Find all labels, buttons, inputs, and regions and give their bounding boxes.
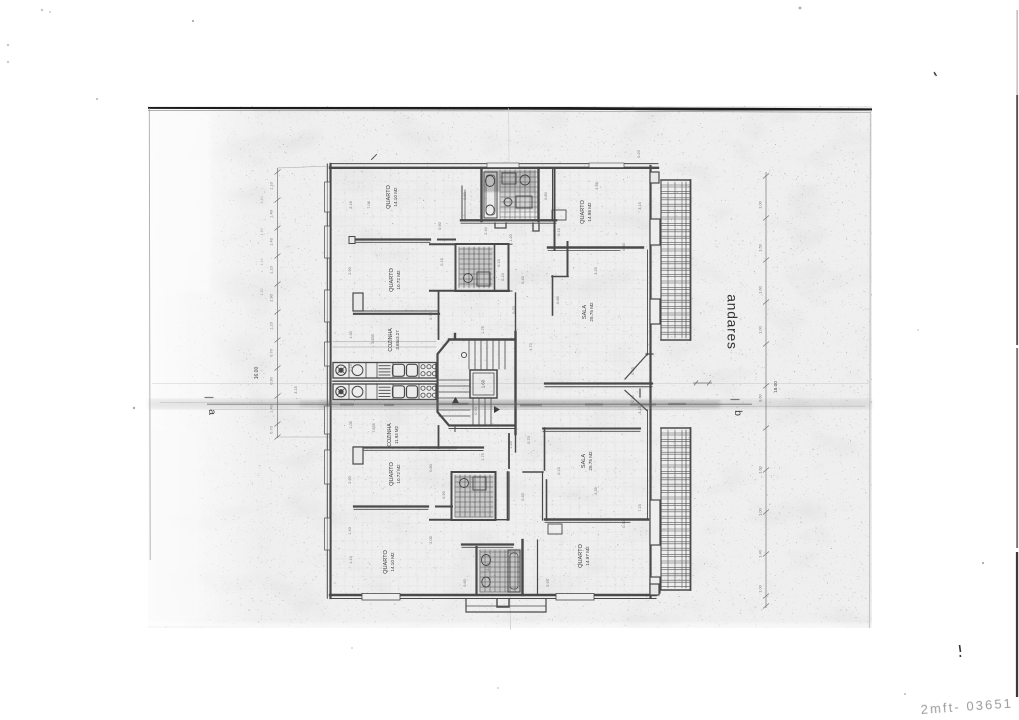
svg-text:4.35: 4.35 (594, 487, 598, 494)
svg-text:7.15: 7.15 (638, 504, 642, 511)
svg-text:3.15: 3.15 (294, 386, 298, 393)
svg-text:2.90: 2.90 (348, 267, 352, 274)
svg-text:2.05: 2.05 (429, 536, 433, 543)
svg-text:10.72 M2: 10.72 M2 (396, 270, 401, 290)
svg-text:1.10: 1.10 (270, 322, 274, 329)
svg-text:0.15: 0.15 (440, 258, 444, 265)
svg-text:1.40: 1.40 (270, 210, 274, 217)
svg-text:0.15: 0.15 (557, 467, 561, 474)
svg-text:1.40: 1.40 (270, 405, 274, 412)
svg-text:7.635: 7.635 (372, 423, 376, 433)
svg-text:1.75: 1.75 (481, 326, 485, 333)
svg-text:2.10: 2.10 (349, 201, 353, 208)
svg-text:1.50: 1.50 (758, 243, 763, 251)
svg-text:25.75 M2: 25.75 M2 (588, 451, 593, 471)
svg-text:0.90: 0.90 (438, 222, 442, 229)
svg-text:2.90: 2.90 (348, 476, 352, 483)
svg-text:1.10: 1.10 (270, 182, 274, 189)
svg-text:0.90: 0.90 (474, 407, 478, 414)
svg-text:0.10: 0.10 (501, 273, 505, 280)
svg-text:1.20: 1.20 (509, 441, 513, 448)
svg-text:2.40: 2.40 (484, 227, 488, 234)
svg-text:0.15: 0.15 (557, 228, 561, 235)
svg-text:0.30: 0.30 (622, 520, 626, 527)
svg-text:14.10 M2: 14.10 M2 (390, 552, 395, 572)
svg-text:0.15: 0.15 (497, 259, 501, 266)
svg-text:1.10: 1.10 (260, 197, 264, 204)
svg-text:QUARTO: QUARTO (580, 199, 586, 223)
svg-text:16.00: 16.00 (254, 367, 260, 380)
svg-text:2.15: 2.15 (349, 364, 353, 371)
svg-text:1.43: 1.43 (260, 259, 264, 266)
svg-text:1.75: 1.75 (481, 453, 485, 460)
svg-text:1.43: 1.43 (270, 238, 274, 245)
svg-text:14.97 M2: 14.97 M2 (585, 546, 590, 566)
svg-text:SALA: SALA (581, 454, 587, 469)
svg-text:0.80: 0.80 (429, 464, 433, 471)
svg-text:0.20: 0.20 (512, 306, 516, 313)
svg-text:0.90: 0.90 (270, 377, 274, 384)
svg-text:COZINHA: COZINHA (388, 328, 394, 352)
svg-text:3.15: 3.15 (638, 202, 642, 209)
svg-text:10.72 M2: 10.72 M2 (396, 464, 401, 484)
svg-text:1.05: 1.05 (349, 421, 353, 428)
svg-text:11.93 M2: 11.93 M2 (394, 425, 399, 444)
svg-text:1.20: 1.20 (509, 234, 513, 241)
svg-text:18.00: 18.00 (773, 381, 778, 393)
svg-text:1.40: 1.40 (348, 527, 352, 534)
svg-text:QUARTO: QUARTO (386, 184, 392, 208)
svg-text:QUARTO: QUARTO (383, 549, 389, 573)
svg-text:1.10: 1.10 (349, 556, 353, 563)
svg-text:0.70: 0.70 (527, 436, 531, 443)
svg-text:1.00: 1.00 (758, 507, 763, 515)
svg-text:0.80: 0.80 (544, 192, 548, 199)
svg-text:1.10: 1.10 (270, 266, 274, 273)
svg-text:1.00: 1.00 (758, 584, 763, 592)
svg-text:b: b (732, 410, 744, 416)
svg-text:QUARTO: QUARTO (578, 543, 584, 567)
svg-text:1.16: 1.16 (260, 229, 264, 236)
svg-text:1.60: 1.60 (481, 379, 486, 388)
svg-text:3.15: 3.15 (638, 406, 642, 413)
svg-text:1.60: 1.60 (758, 285, 763, 293)
svg-text:3.25: 3.25 (594, 267, 598, 274)
svg-text:andares: andares (725, 294, 740, 349)
svg-text:14.98 M2: 14.98 M2 (587, 202, 592, 222)
svg-text:0.40: 0.40 (521, 276, 525, 283)
svg-text:0.70: 0.70 (429, 312, 433, 319)
svg-text:0.95: 0.95 (546, 579, 550, 586)
svg-text:1.10: 1.10 (260, 289, 264, 296)
svg-text:0.15: 0.15 (631, 367, 635, 374)
svg-text:14.10 M2: 14.10 M2 (393, 187, 398, 207)
svg-text:4.95: 4.95 (595, 182, 599, 189)
svg-text:SALA: SALA (582, 305, 588, 320)
svg-text:0.65: 0.65 (556, 296, 560, 303)
svg-text:0.60: 0.60 (463, 192, 467, 199)
svg-text:1.00: 1.00 (758, 200, 763, 208)
svg-text:0.30: 0.30 (622, 243, 626, 250)
svg-text:1.30: 1.30 (349, 331, 353, 338)
svg-text:1.60: 1.60 (758, 465, 763, 473)
svg-text:QUARTO: QUARTO (389, 461, 395, 485)
svg-text:3.635: 3.635 (371, 334, 375, 344)
svg-text:1.00: 1.00 (758, 325, 763, 333)
svg-text:8.60: 8.60 (758, 393, 763, 401)
svg-text:a: a (206, 409, 218, 415)
svg-text:3.65x3.27: 3.65x3.27 (395, 330, 400, 350)
svg-text:0.15: 0.15 (631, 395, 635, 402)
svg-text:1.40: 1.40 (758, 549, 763, 557)
svg-text:QUARTO: QUARTO (389, 267, 395, 291)
svg-text:COZINHA: COZINHA (387, 423, 393, 447)
svg-text:25.75 M2: 25.75 M2 (589, 302, 594, 322)
svg-text:4.70: 4.70 (529, 343, 533, 350)
svg-text:0.70: 0.70 (270, 349, 274, 356)
svg-text:0.60: 0.60 (463, 579, 467, 586)
svg-text:0.70: 0.70 (270, 426, 274, 433)
svg-text:0.20: 0.20 (637, 150, 641, 157)
svg-text:0.40: 0.40 (521, 493, 525, 500)
svg-text:2.90: 2.90 (270, 294, 274, 301)
svg-text:7.06: 7.06 (367, 201, 371, 208)
svg-text:0.90: 0.90 (442, 491, 446, 498)
